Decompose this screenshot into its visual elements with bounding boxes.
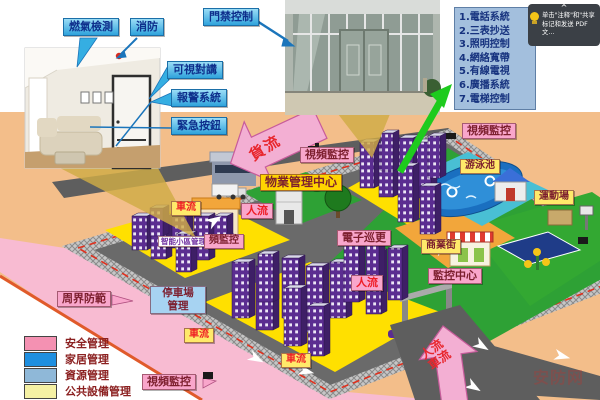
callout-gas-detection: 燃氣檢測	[63, 18, 119, 36]
chevron-up-icon[interactable]: ^	[528, 4, 600, 11]
legend-row: 公共設備管理	[24, 383, 131, 399]
label-property-management-center: 物業管理中心	[260, 174, 342, 191]
legend-label: 安全管理	[65, 335, 109, 351]
label-monitoring-center: 監控中心	[428, 268, 482, 284]
service-item: 4.網絡寬帶	[459, 52, 531, 66]
label-vehicle-flow-3: 車流	[281, 353, 311, 368]
legend-label: 家居管理	[65, 351, 109, 367]
lightbulb-icon	[530, 12, 539, 25]
callout-video-intercom: 可視對講	[167, 61, 223, 79]
legend-label: 公共設備管理	[65, 383, 131, 399]
label-people-flow-1: 人流	[241, 203, 273, 219]
label-electronic-patrol: 電子巡更	[337, 230, 391, 246]
parking-line2: 管理	[168, 300, 189, 312]
legend-row: 安全管理	[24, 335, 131, 351]
callout-alarm-system: 報警系統	[171, 89, 227, 107]
legend-row: 家居管理	[24, 351, 131, 367]
legend-row: 資源管理	[24, 367, 131, 383]
label-parking-management: 停車場 管理	[150, 286, 206, 314]
callout-fire-protection: 消防	[130, 18, 164, 36]
label-commercial-street: 商業街	[421, 239, 461, 254]
label-vehicle-flow-2: 車流	[184, 328, 214, 343]
label-video-surveillance-partial: 頻監控	[204, 234, 244, 249]
label-people-flow-2: 人流	[351, 275, 383, 291]
callout-emergency-button: 緊急按鈕	[171, 117, 227, 135]
pdf-annotation-tooltip: ^ 单击"注释"和"共享 标记和发送 PDF 文…	[528, 4, 600, 46]
label-swimming-pool: 游泳池	[460, 159, 500, 174]
service-item: 1.電話系統	[459, 11, 531, 25]
smart-community-diagram: 燃氣檢測 消防 門禁控制 可視對講 報警系統 緊急按鈕 1.電話系統 2.三表抄…	[0, 0, 600, 400]
label-sports-field: 運動場	[534, 190, 574, 205]
tooltip-line2: 标记和发送 PDF 文…	[542, 21, 588, 37]
service-item: 3.照明控制	[459, 38, 531, 52]
watermark: 安防网	[533, 364, 584, 388]
legend-swatch	[24, 384, 57, 399]
tooltip-line1: 单击"注释"和"共享	[542, 12, 595, 19]
legend: 安全管理 家居管理 資源管理 公共設備管理	[24, 335, 131, 399]
legend-swatch	[24, 336, 57, 351]
service-item: 6.廣播系統	[459, 79, 531, 93]
entrance-gate-photo	[285, 0, 441, 115]
living-room-photo	[25, 48, 160, 168]
label-video-surveillance-2: 視頻監控	[462, 123, 516, 139]
callout-access-control: 門禁控制	[203, 8, 259, 26]
label-video-surveillance-3: 視頻監控	[142, 374, 196, 390]
service-item: 5.有線電視	[459, 65, 531, 79]
label-smart-district-management: 智能小區管理	[158, 236, 209, 247]
label-perimeter-protection: 周界防範	[57, 291, 111, 307]
label-video-surveillance-1: 視頻監控	[300, 147, 354, 163]
community-services-list: 1.電話系統 2.三表抄送 3.照明控制 4.網絡寬帶 5.有線電視 6.廣播系…	[454, 7, 536, 110]
legend-swatch	[24, 368, 57, 383]
legend-swatch	[24, 352, 57, 367]
service-item: 7.電梯控制	[459, 93, 531, 107]
service-item: 2.三表抄送	[459, 25, 531, 39]
parking-line1: 停車場	[162, 287, 194, 299]
legend-label: 資源管理	[65, 367, 109, 383]
label-vehicle-flow-1: 車流	[171, 201, 201, 216]
